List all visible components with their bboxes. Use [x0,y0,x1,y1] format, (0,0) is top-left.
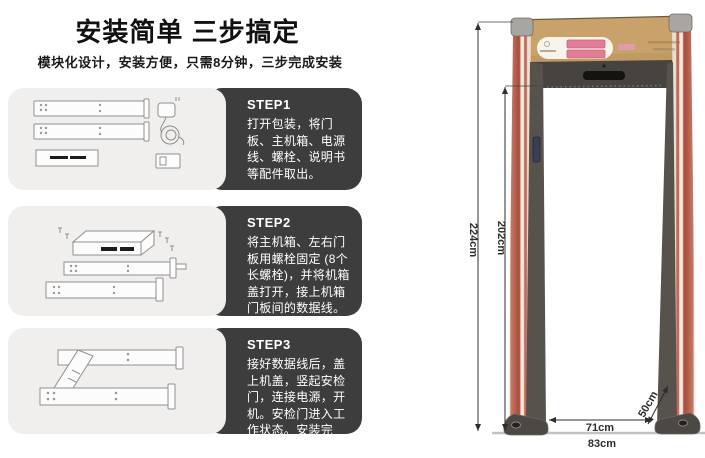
step2-label: STEP2 [247,215,352,230]
left-foot-bolt-icon [512,422,521,428]
dim-base-depth-label: 50cm [636,389,661,420]
led-display-top [567,40,605,48]
step3-label: STEP3 [247,337,352,352]
metal-detector-diagram: 224cm 202cm 71cm 83cm 50cm [455,0,705,458]
step3-text: 接好数据线后，盖上机盖，竖起安检门，连接电源，开机。安检门进入工作状态。安装完成… [247,356,352,455]
power-adapter-icon [158,103,175,117]
dim-inner-height-label: 202cm [495,221,507,255]
step1-callout: STEP1 打开包装，将门板、主机箱、电源线、螺栓、说明书等配件取出。 [206,88,362,190]
dim-outer-height-label: 224cm [467,223,479,257]
step2-text: 将主机箱、左右门板用螺栓固定 (8个长螺栓)，并将机箱盖打开，接上机箱门板间的数… [247,234,352,317]
installation-guide-page: 安装简单 三步搞定 模块化设计，安装方便，只需8分钟，三步完成安装 STEP1 … [0,0,705,458]
step3-illustration-panel [8,328,226,434]
step2-illustration-panel [8,206,226,316]
step-row-2: STEP2 将主机箱、左右门板用螺栓固定 (8个长螺栓)，并将机箱盖打开，接上机… [8,206,364,316]
led-display-bottom [567,50,605,58]
bolting-illustration [8,206,226,316]
step-row-3: STEP3 接好数据线后，盖上机盖，竖起安检门，连接电源，开机。安检门进入工作状… [8,328,364,434]
step2-callout: STEP2 将主机箱、左右门板用螺栓固定 (8个长螺栓)，并将机箱盖打开，接上机… [206,206,362,316]
speaker-slot-icon [583,71,625,80]
right-corner-cap [669,14,692,32]
detector-gate-drawing: 224cm 202cm 71cm 83cm 50cm [455,0,705,458]
step1-illustration-panel [8,88,226,190]
pink-label [618,44,635,50]
page-subtitle: 模块化设计，安装方便，只需8分钟，三步完成安装 [0,52,380,71]
assembled-frame-illustration [8,328,226,434]
left-corner-cap [511,18,533,36]
unpacking-illustration [8,88,226,190]
page-title: 安装简单 三步搞定 [0,12,375,49]
step1-text: 打开包装，将门板、主机箱、电源线、螺栓、说明书等配件取出。 [247,116,352,182]
print-text-marks [648,41,680,44]
step1-label: STEP1 [247,97,352,112]
step3-callout: STEP3 接好数据线后，盖上机盖，竖起安检门，连接电源，开机。安检门进入工作状… [206,328,362,434]
dim-outer-width-label: 83cm [588,438,616,450]
dim-inner-width-label: 71cm [586,422,614,434]
step-row-1: STEP1 打开包装，将门板、主机箱、电源线、螺栓、说明书等配件取出。 [8,88,364,190]
connector-socket-icon [533,137,540,162]
right-foot-bolt-icon [679,420,688,426]
